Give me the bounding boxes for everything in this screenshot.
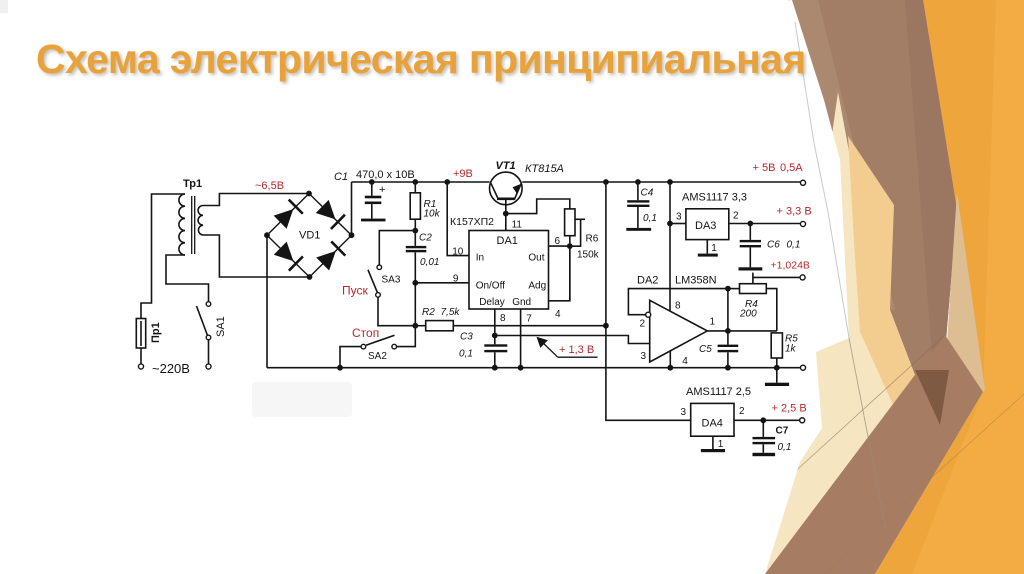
svg-text:C6: C6 xyxy=(767,240,780,251)
svg-text:~6,5В: ~6,5В xyxy=(255,180,284,192)
svg-text:R2: R2 xyxy=(422,307,435,318)
svg-text:6: 6 xyxy=(555,236,561,247)
svg-text:470,0 x 10В: 470,0 x 10В xyxy=(356,169,415,181)
svg-text:1: 1 xyxy=(711,243,717,254)
svg-text:DA3: DA3 xyxy=(695,220,716,232)
svg-text:AMS1117 3,3: AMS1117 3,3 xyxy=(682,192,747,204)
svg-text:SA3: SA3 xyxy=(382,275,401,286)
svg-text:+9В: +9В xyxy=(453,168,473,180)
svg-text:+: + xyxy=(379,184,385,196)
svg-text:8: 8 xyxy=(675,301,681,312)
svg-text:R6: R6 xyxy=(586,234,599,245)
svg-text:10k: 10k xyxy=(424,209,441,220)
svg-text:On/Off: On/Off xyxy=(476,281,505,292)
svg-text:3: 3 xyxy=(681,407,687,418)
svg-text:LM358N: LM358N xyxy=(675,275,717,287)
svg-text:+1,024В: +1,024В xyxy=(771,260,810,272)
svg-text:К157ХП2: К157ХП2 xyxy=(450,216,494,228)
svg-text:+ 2,5 В: + 2,5 В xyxy=(772,403,807,415)
svg-text:Delay: Delay xyxy=(479,297,505,308)
svg-text:C3: C3 xyxy=(460,332,473,343)
svg-text:C5: C5 xyxy=(699,344,712,355)
svg-text:C2: C2 xyxy=(419,233,432,244)
svg-text:0,1: 0,1 xyxy=(787,240,801,251)
svg-text:10: 10 xyxy=(452,247,464,258)
svg-text:VD1: VD1 xyxy=(299,230,320,242)
svg-text:4: 4 xyxy=(555,309,561,320)
svg-text:0,1: 0,1 xyxy=(643,213,657,224)
svg-text:Стоп: Стоп xyxy=(352,326,379,340)
svg-text:8: 8 xyxy=(500,313,506,324)
svg-text:+ 5В: + 5В xyxy=(753,162,776,174)
svg-text:0,5А: 0,5А xyxy=(780,162,803,174)
svg-text:Пр1: Пр1 xyxy=(150,322,162,343)
svg-text:0,1: 0,1 xyxy=(778,442,792,453)
svg-text:+ 1,3 В: + 1,3 В xyxy=(559,344,594,356)
svg-text:3: 3 xyxy=(641,351,647,362)
svg-text:SA2: SA2 xyxy=(368,351,387,362)
svg-text:DA2: DA2 xyxy=(637,275,658,287)
svg-text:7,5k: 7,5k xyxy=(441,307,461,318)
svg-text:9: 9 xyxy=(453,274,459,285)
svg-text:2: 2 xyxy=(640,319,646,330)
svg-text:C4: C4 xyxy=(641,188,654,199)
svg-text:11: 11 xyxy=(512,220,523,231)
svg-text:DA4: DA4 xyxy=(702,418,723,430)
svg-text:Out: Out xyxy=(528,253,544,264)
svg-text:2: 2 xyxy=(733,210,739,221)
svg-text:4: 4 xyxy=(682,356,688,367)
svg-text:0,1: 0,1 xyxy=(459,349,473,360)
svg-text:VT1: VT1 xyxy=(496,160,516,172)
svg-text:0,01: 0,01 xyxy=(420,257,439,268)
svg-text:In: In xyxy=(476,253,484,264)
svg-text:3: 3 xyxy=(676,212,682,223)
svg-text:Gnd: Gnd xyxy=(512,297,531,308)
svg-text:C7: C7 xyxy=(776,426,789,437)
svg-text:2: 2 xyxy=(739,406,745,417)
svg-text:~220В: ~220В xyxy=(152,361,190,376)
svg-text:DA1: DA1 xyxy=(497,235,518,247)
svg-text:Adg: Adg xyxy=(528,281,546,292)
svg-text:КТ815А: КТ815А xyxy=(525,163,564,175)
svg-text:1k: 1k xyxy=(785,344,797,355)
svg-text:C1: C1 xyxy=(334,171,348,183)
svg-text:200: 200 xyxy=(739,309,757,320)
svg-text:1: 1 xyxy=(718,439,724,450)
svg-text:+ 3,3 В: + 3,3 В xyxy=(777,206,812,218)
svg-text:Пуск: Пуск xyxy=(342,284,368,298)
svg-text:150k: 150k xyxy=(577,250,600,261)
svg-text:7: 7 xyxy=(526,314,532,325)
svg-text:AMS1117 2,5: AMS1117 2,5 xyxy=(686,386,751,398)
svg-text:1: 1 xyxy=(710,317,716,328)
svg-text:SA1: SA1 xyxy=(215,316,227,337)
svg-text:Тр1: Тр1 xyxy=(183,178,202,190)
